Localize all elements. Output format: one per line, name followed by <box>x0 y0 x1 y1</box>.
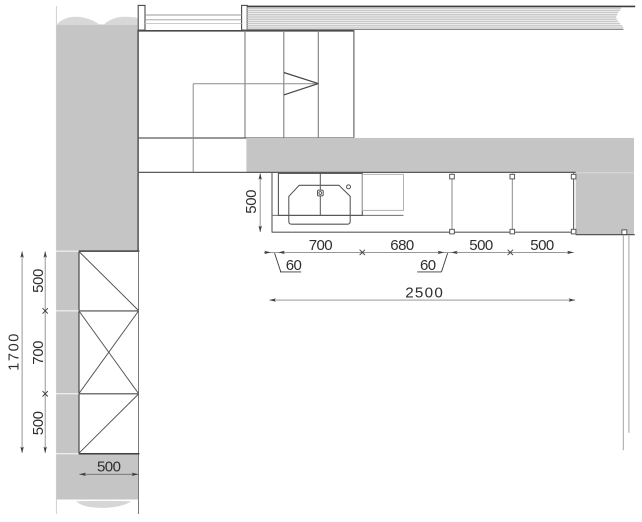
svg-text:700: 700 <box>30 341 47 365</box>
svg-text:60: 60 <box>420 257 436 274</box>
svg-text:500: 500 <box>243 190 260 214</box>
svg-text:500: 500 <box>469 237 493 254</box>
svg-text:60: 60 <box>286 257 302 274</box>
svg-text:2500: 2500 <box>405 284 444 301</box>
svg-text:500: 500 <box>530 237 554 254</box>
svg-text:500: 500 <box>97 458 121 475</box>
svg-text:1700: 1700 <box>6 332 22 371</box>
svg-text:680: 680 <box>390 237 414 254</box>
svg-text:700: 700 <box>309 237 333 254</box>
svg-text:500: 500 <box>30 269 47 293</box>
svg-text:500: 500 <box>30 411 47 435</box>
